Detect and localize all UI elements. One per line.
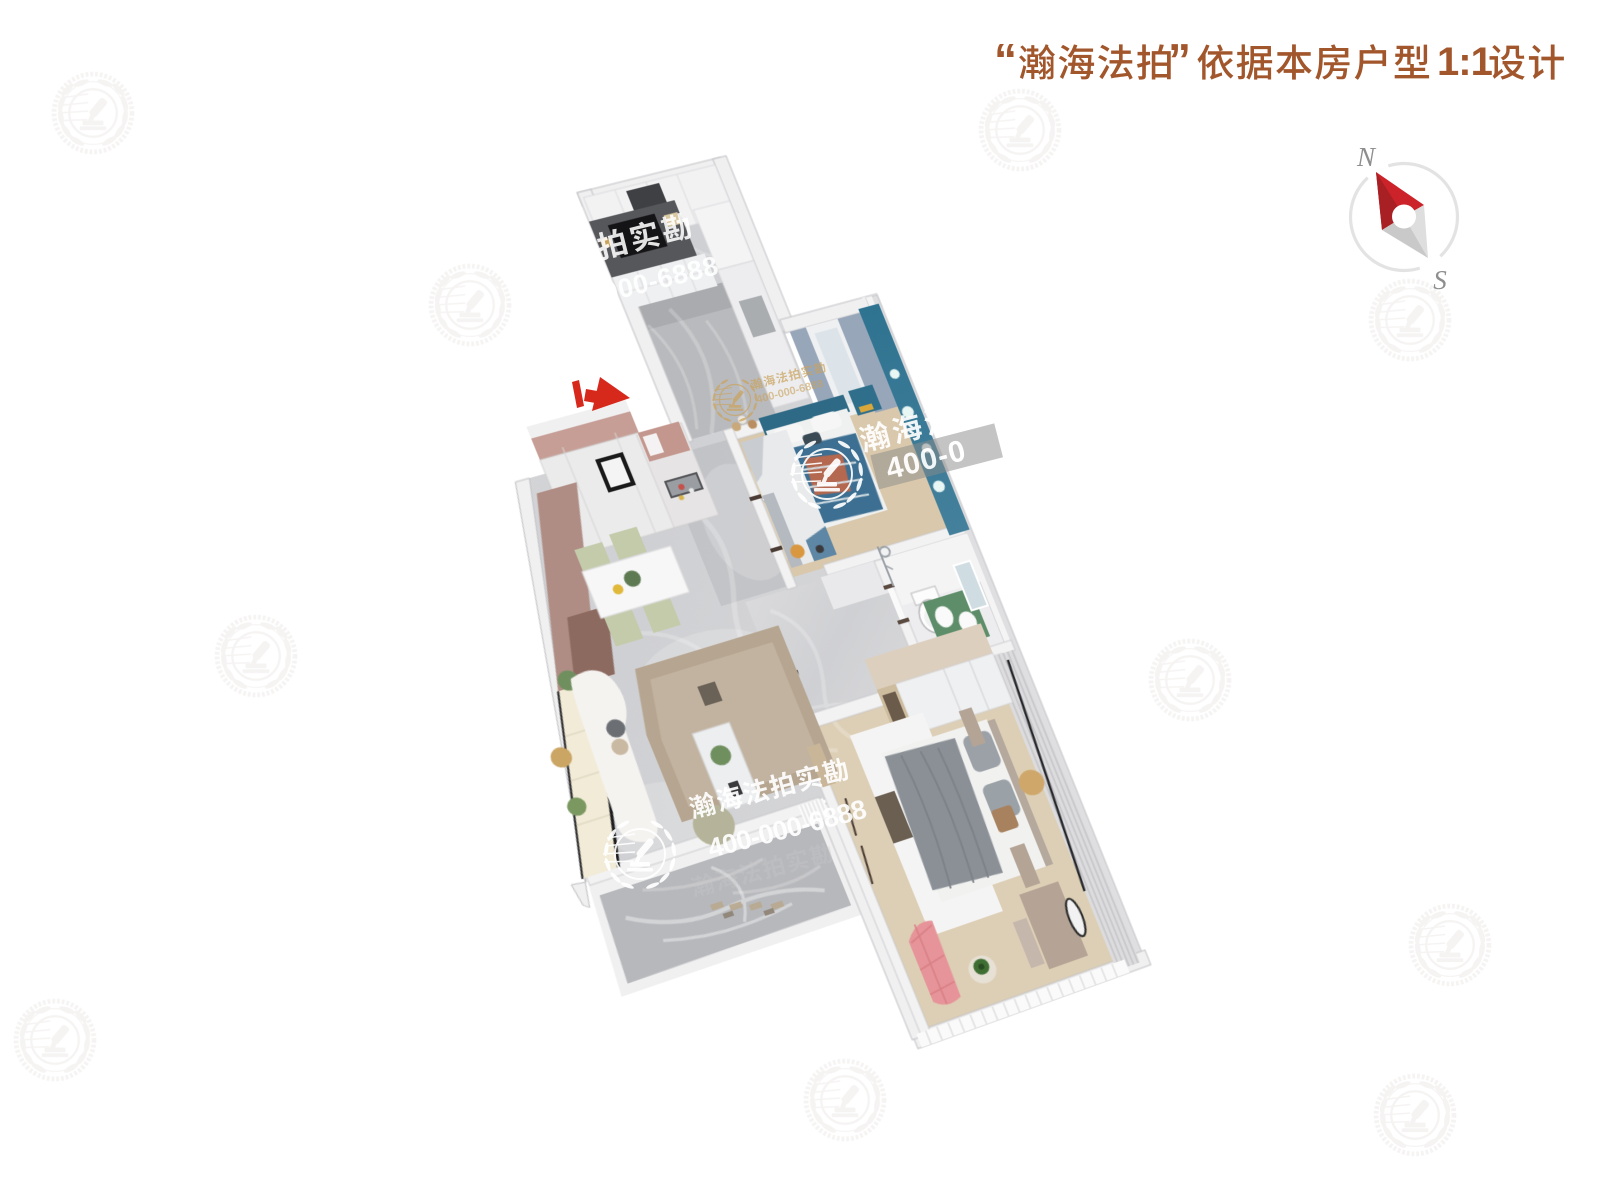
svg-text:S: S <box>1433 265 1447 295</box>
svg-text:400-000-6888: 400-000-6888 <box>545 250 721 321</box>
svg-text:1:1: 1:1 <box>1437 40 1493 84</box>
svg-text:N: N <box>1356 142 1377 172</box>
svg-text:400-000-6888: 400-000-6888 <box>755 378 824 406</box>
svg-text:”: ” <box>1168 34 1191 86</box>
svg-text:“: “ <box>994 34 1017 86</box>
